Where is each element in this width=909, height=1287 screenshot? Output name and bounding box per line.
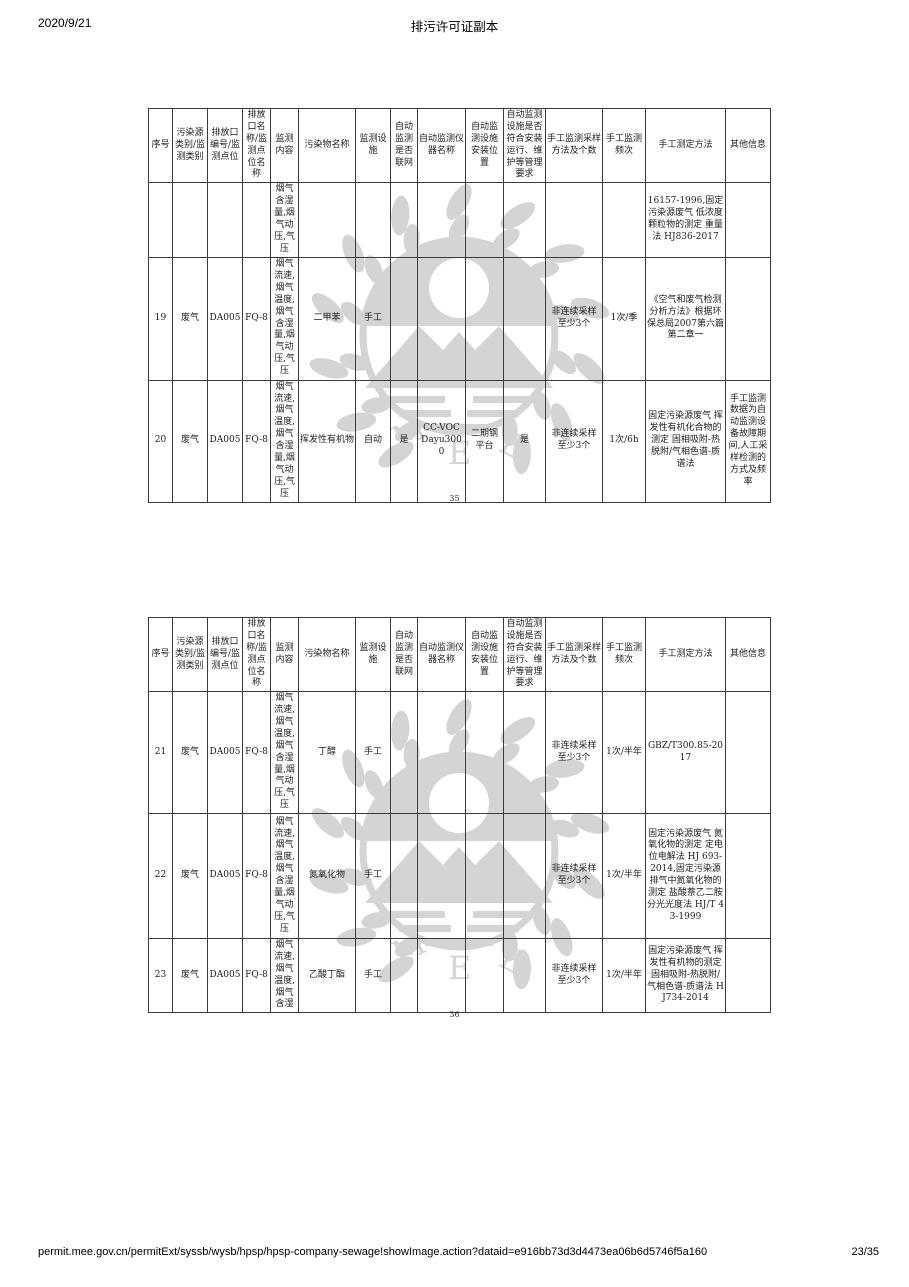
cell-networked [391, 814, 418, 939]
cell-networked: 是 [391, 380, 418, 502]
col-source-category: 污染源类别/监测类别 [173, 618, 208, 692]
cell-outlet-no: DA005 [208, 257, 243, 380]
cell-content: 烟气流速,烟气温度,烟气含湿量,烟气动压,气压 [271, 814, 299, 939]
col-sampling: 手工监测采样方法及个数 [546, 618, 603, 692]
cell-seq [149, 183, 173, 257]
cell-seq: 23 [149, 939, 173, 1013]
cell-compliant [504, 257, 546, 380]
cell-other [726, 257, 771, 380]
cell-content: 烟气流速,烟气温度,烟气含湿量,烟气动压,气压 [271, 692, 299, 814]
table-header-row: 序号 污染源类别/监测类别 排放口编号/监测点位 排放口名称/监测点位名称 监测… [149, 109, 771, 183]
cell-other [726, 814, 771, 939]
cell-frequency [603, 183, 646, 257]
cell-outlet-name: FQ-8 [243, 939, 271, 1013]
cell-facility [356, 183, 391, 257]
col-frequency: 手工监测频次 [603, 109, 646, 183]
cell-category: 废气 [173, 692, 208, 814]
cell-content: 烟气流速,烟气温度,烟气含湿量,烟气动压,气压 [271, 380, 299, 502]
cell-outlet-no: DA005 [208, 380, 243, 502]
cell-other: 手工监测数据为自动监测设备故障期间,人工采样检测的方式及频率 [726, 380, 771, 502]
cell-install-pos: 二期钢平台 [466, 380, 504, 502]
cell-sampling [546, 183, 603, 257]
cell-install-pos [466, 183, 504, 257]
cell-networked [391, 692, 418, 814]
col-outlet-no: 排放口编号/监测点位 [208, 618, 243, 692]
cell-method: 《空气和废气检测分析方法》根据环保总局2007第六篇第二章一 [646, 257, 726, 380]
table-header-row: 序号 污染源类别/监测类别 排放口编号/监测点位 排放口名称/监测点位名称 监测… [149, 618, 771, 692]
cell-compliant [504, 692, 546, 814]
cell-facility: 手工 [356, 257, 391, 380]
cell-facility: 手工 [356, 939, 391, 1013]
cell-seq: 19 [149, 257, 173, 380]
cell-pollutant: 氮氧化物 [299, 814, 356, 939]
col-outlet-name: 排放口名称/监测点位名称 [243, 109, 271, 183]
cell-pollutant: 乙酸丁酯 [299, 939, 356, 1013]
monitoring-table-1: 序号 污染源类别/监测类别 排放口编号/监测点位 排放口名称/监测点位名称 监测… [148, 108, 771, 503]
cell-instrument [418, 183, 466, 257]
cell-frequency: 1次/半年 [603, 939, 646, 1013]
cell-compliant [504, 939, 546, 1013]
cell-seq: 22 [149, 814, 173, 939]
cell-outlet-no: DA005 [208, 939, 243, 1013]
col-source-category: 污染源类别/监测类别 [173, 109, 208, 183]
cell-outlet-name: FQ-8 [243, 692, 271, 814]
cell-instrument [418, 814, 466, 939]
cell-facility: 自动 [356, 380, 391, 502]
cell-instrument [418, 939, 466, 1013]
footer-page-indicator: 23/35 [851, 1246, 879, 1258]
cell-compliant: 是 [504, 380, 546, 502]
cell-pollutant: 二甲苯 [299, 257, 356, 380]
col-method: 手工测定方法 [646, 618, 726, 692]
cell-compliant [504, 183, 546, 257]
col-seq: 序号 [149, 618, 173, 692]
cell-category: 废气 [173, 257, 208, 380]
cell-pollutant: 挥发性有机物 [299, 380, 356, 502]
col-install-pos: 自动监测设施安装位置 [466, 618, 504, 692]
cell-content: 烟气流速,烟气温度,烟气含湿 [271, 939, 299, 1013]
cell-instrument [418, 692, 466, 814]
col-frequency: 手工监测频次 [603, 618, 646, 692]
col-pollutant: 污染物名称 [299, 109, 356, 183]
cell-sampling: 非连续采样 至少3个 [546, 257, 603, 380]
monitoring-table-2: 序号 污染源类别/监测类别 排放口编号/监测点位 排放口名称/监测点位名称 监测… [148, 617, 771, 1013]
cell-outlet-no: DA005 [208, 814, 243, 939]
table-row: 22 废气 DA005 FQ-8 烟气流速,烟气温度,烟气含湿量,烟气动压,气压… [149, 814, 771, 939]
cell-seq: 21 [149, 692, 173, 814]
cell-compliant [504, 814, 546, 939]
col-content: 监测内容 [271, 618, 299, 692]
cell-outlet-name: FQ-8 [243, 380, 271, 502]
cell-method: 固定污染源废气 挥发性有机物的测定 固相吸附-热脱附/气相色谱-质谱法 HJ73… [646, 939, 726, 1013]
col-other: 其他信息 [726, 618, 771, 692]
footer-url: permit.mee.gov.cn/permitExt/syssb/wysb/h… [38, 1246, 707, 1258]
cell-content: 烟气含湿量,烟气动压,气压 [271, 183, 299, 257]
table-row: 21 废气 DA005 FQ-8 烟气流速,烟气温度,烟气含湿量,烟气动压,气压… [149, 692, 771, 814]
cell-sampling: 非连续采样 至少3个 [546, 380, 603, 502]
cell-outlet-name: FQ-8 [243, 257, 271, 380]
cell-pollutant [299, 183, 356, 257]
cell-install-pos [466, 814, 504, 939]
cell-networked [391, 183, 418, 257]
cell-frequency: 1次/季 [603, 257, 646, 380]
col-install-pos: 自动监测设施安装位置 [466, 109, 504, 183]
cell-category [173, 183, 208, 257]
col-other: 其他信息 [726, 109, 771, 183]
cell-method: 16157-1996,固定污染源废气 低浓度颗粒物的测定 重量法 HJ836-2… [646, 183, 726, 257]
cell-frequency: 1次/半年 [603, 692, 646, 814]
cell-instrument: CC-VOC Dayu3000 [418, 380, 466, 502]
col-compliant: 自动监测设施是否符合安装运行、维护等管理要求 [504, 618, 546, 692]
cell-sampling: 非连续采样 至少3个 [546, 939, 603, 1013]
cell-outlet-no: DA005 [208, 692, 243, 814]
cell-category: 废气 [173, 939, 208, 1013]
cell-method: 固定污染源废气 挥发性有机化合物的测定 固相吸附-热脱附/气相色谱-质谱法 [646, 380, 726, 502]
cell-frequency: 1次/半年 [603, 814, 646, 939]
cell-category: 废气 [173, 814, 208, 939]
cell-content: 烟气流速,烟气温度,烟气含湿量,烟气动压,气压 [271, 257, 299, 380]
cell-outlet-name: FQ-8 [243, 814, 271, 939]
table-row: 19 废气 DA005 FQ-8 烟气流速,烟气温度,烟气含湿量,烟气动压,气压… [149, 257, 771, 380]
col-compliant: 自动监测设施是否符合安装运行、维护等管理要求 [504, 109, 546, 183]
col-sampling: 手工监测采样方法及个数 [546, 109, 603, 183]
col-method: 手工测定方法 [646, 109, 726, 183]
col-facility: 监测设施 [356, 109, 391, 183]
table-row: 烟气含湿量,烟气动压,气压 16157-1996,固定污染源废气 低浓度颗粒物的… [149, 183, 771, 257]
cell-facility: 手工 [356, 692, 391, 814]
table-row: 20 废气 DA005 FQ-8 烟气流速,烟气温度,烟气含湿量,烟气动压,气压… [149, 380, 771, 502]
col-instrument: 自动监测仪器名称 [418, 618, 466, 692]
cell-sampling: 非连续采样 至少3个 [546, 692, 603, 814]
cell-install-pos [466, 939, 504, 1013]
col-networked: 自动监测是否联网 [391, 109, 418, 183]
col-facility: 监测设施 [356, 618, 391, 692]
col-networked: 自动监测是否联网 [391, 618, 418, 692]
permit-document-page: M E E 2020/9/21 排污许可证副本 序号 污染源类别/监测类别 排放… [0, 0, 909, 1287]
col-content: 监测内容 [271, 109, 299, 183]
col-seq: 序号 [149, 109, 173, 183]
cell-sampling: 非连续采样 至少3个 [546, 814, 603, 939]
col-outlet-no: 排放口编号/监测点位 [208, 109, 243, 183]
cell-facility: 手工 [356, 814, 391, 939]
cell-method: 固定污染源废气 氮氧化物的测定 定电位电解法 HJ 693-2014,固定污染源… [646, 814, 726, 939]
cell-other [726, 939, 771, 1013]
cell-outlet-name [243, 183, 271, 257]
cell-category: 废气 [173, 380, 208, 502]
col-outlet-name: 排放口名称/监测点位名称 [243, 618, 271, 692]
cell-frequency: 1次/6h [603, 380, 646, 502]
cell-install-pos [466, 692, 504, 814]
cell-instrument [418, 257, 466, 380]
document-title: 排污许可证副本 [0, 16, 909, 35]
cell-other [726, 692, 771, 814]
cell-networked [391, 257, 418, 380]
col-instrument: 自动监测仪器名称 [418, 109, 466, 183]
cell-networked [391, 939, 418, 1013]
cell-other [726, 183, 771, 257]
cell-method: GBZ/T300.85-2017 [646, 692, 726, 814]
table-row: 23 废气 DA005 FQ-8 烟气流速,烟气温度,烟气含湿 乙酸丁酯 手工 … [149, 939, 771, 1013]
cell-outlet-no [208, 183, 243, 257]
cell-pollutant: 丁醇 [299, 692, 356, 814]
col-pollutant: 污染物名称 [299, 618, 356, 692]
cell-seq: 20 [149, 380, 173, 502]
cell-install-pos [466, 257, 504, 380]
